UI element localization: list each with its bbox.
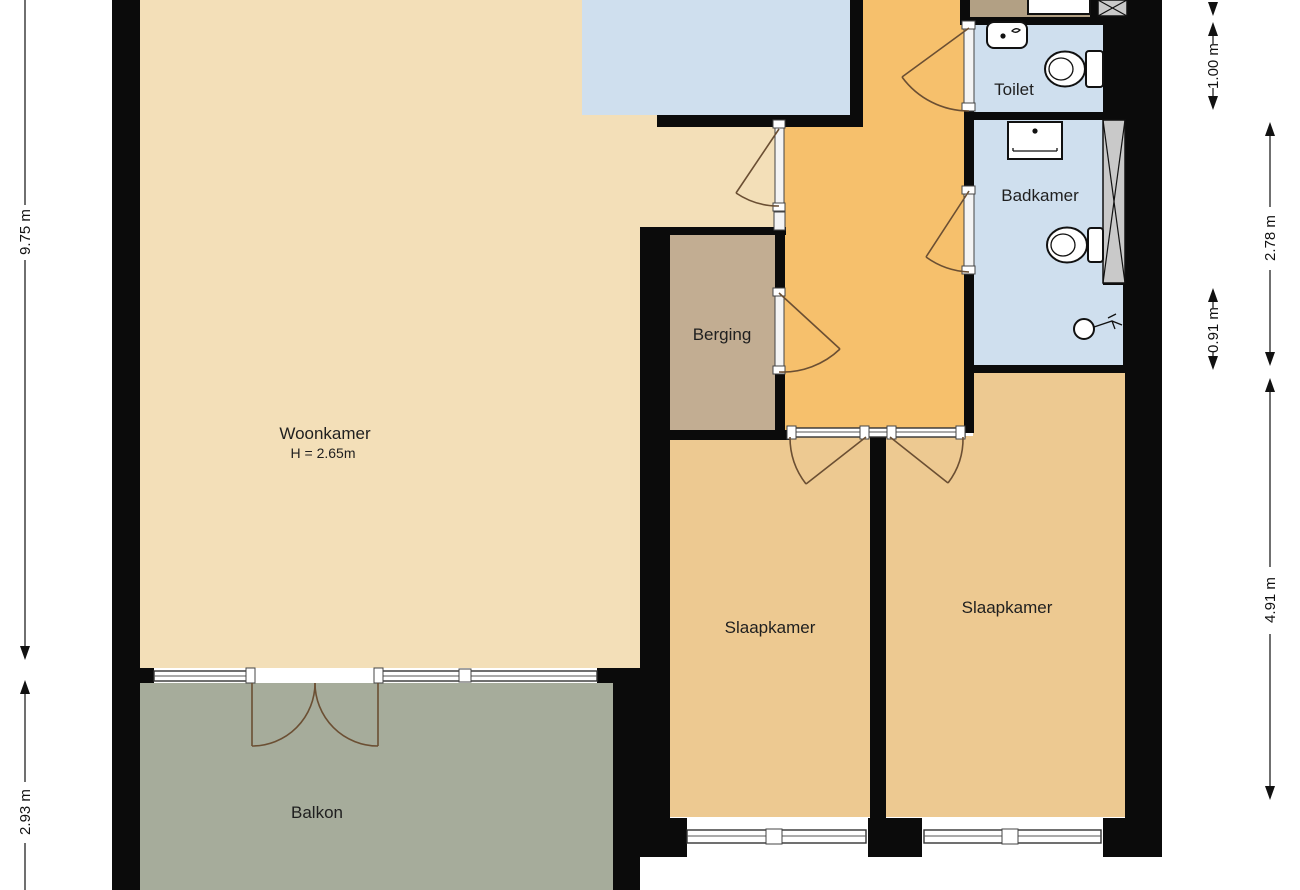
label-badkamer: Badkamer [1001, 186, 1079, 205]
wall-woonkamer-south-left [140, 668, 154, 683]
dimension-right-badkamer: 2.78 m [1262, 122, 1279, 366]
toilet-icon-badkamer [1047, 228, 1103, 263]
label-woonkamer-height: H = 2.65m [291, 445, 356, 461]
wall-berging-hall-b [775, 371, 785, 440]
wall-berging-hall-a [775, 227, 785, 291]
door-jamb [962, 103, 975, 111]
dimension-right-badkamer-low: 0.91 m [1205, 288, 1222, 370]
label-slaapkamer-right: Slaapkamer [962, 598, 1053, 617]
door-jamb [860, 426, 869, 439]
sink-icon-badkamer [1008, 122, 1062, 159]
room-hall [783, 127, 964, 433]
dimension-left-balcony: 2.93 m [17, 680, 34, 890]
arrow-down-icon [1208, 96, 1218, 110]
dimension-right-toilet: 1.00 m [1205, 22, 1222, 110]
dimension-label: 2.78 m [1262, 215, 1279, 261]
dimension-label: 2.93 m [17, 789, 34, 835]
door-toilet-band [964, 27, 974, 105]
arrow-up-icon [1265, 378, 1275, 392]
door-jamb [246, 668, 255, 683]
arrow-up-icon [20, 680, 30, 694]
arrow-up-icon [1265, 122, 1275, 136]
wall-kitchen-right [850, 0, 863, 127]
wall-exterior-right-mid [1123, 285, 1162, 373]
arrow-down-icon [1265, 786, 1275, 800]
dimension-label: 1.00 m [1205, 43, 1222, 89]
arrow-down-icon [1208, 2, 1218, 16]
label-balkon: Balkon [291, 803, 343, 822]
window-mullion [766, 829, 782, 844]
wall-berging-bottom [640, 430, 790, 440]
wall-woonkamer-berging [640, 227, 670, 857]
wall-annex-left [960, 0, 970, 17]
wall-badkamer-bottom [964, 365, 1123, 373]
arrow-down-icon [1265, 352, 1275, 366]
room-slaapkamer-right-upper [973, 373, 1125, 440]
door-berging-band [775, 294, 784, 368]
wall-bedroom-divider [870, 428, 886, 818]
door-jamb [374, 668, 383, 683]
door-woonkamer-band [775, 123, 784, 207]
door-jamb [962, 266, 975, 274]
wall-toilet-top [960, 17, 1107, 25]
wall-balkon-right [613, 668, 640, 890]
window-mullion [459, 669, 471, 682]
wall-berging-top [640, 227, 786, 235]
wall-exterior-right-bottom [1125, 373, 1162, 835]
door-jamb [887, 426, 896, 439]
label-berging: Berging [693, 325, 752, 344]
window-mullion [1002, 829, 1018, 844]
label-toilet: Toilet [994, 80, 1034, 99]
door-badkamer-band [964, 192, 974, 268]
door-side-panel [774, 212, 785, 230]
room-balkon [140, 683, 613, 890]
door-jamb [773, 203, 785, 211]
arrow-down-icon [1208, 356, 1218, 370]
door-jamb [773, 120, 785, 128]
floor-plan-canvas: 9.75 m 2.93 m 1.00 m 0.91 m [0, 0, 1300, 890]
wall-toilet-badkamer [964, 112, 1107, 120]
arrow-up-icon [1208, 22, 1218, 36]
room-slaapkamer-right [886, 436, 1125, 817]
kitchen-counter-icon [1028, 0, 1090, 14]
wall-exterior-left [112, 0, 140, 890]
room-woonkamer [140, 0, 640, 668]
floor-plan: 9.75 m 2.93 m 1.00 m 0.91 m [0, 0, 1300, 890]
door-jamb [773, 288, 785, 296]
wall-pier-bottom-left [640, 818, 687, 857]
dimension-label: 4.91 m [1262, 577, 1279, 623]
dimension-left-total: 9.75 m [17, 0, 34, 660]
wall-pier-bottom-right [1103, 818, 1162, 857]
wall-kitchen-bottom [657, 115, 853, 127]
door-jamb [787, 426, 796, 439]
arrow-up-icon [1208, 288, 1218, 302]
room-kitchen-area [582, 0, 850, 115]
wall-hall-right-c [964, 272, 974, 433]
dimension-label: 0.91 m [1205, 307, 1222, 353]
wall-pier-bottom-center [868, 818, 922, 857]
label-slaapkamer-left: Slaapkamer [725, 618, 816, 637]
sink-icon-toilet [987, 22, 1027, 48]
toilet-icon-toilet-room [1045, 51, 1103, 87]
dimension-right-bedroom: 4.91 m [1262, 378, 1279, 800]
label-woonkamer: Woonkamer [279, 424, 371, 443]
dimension-label: 9.75 m [17, 209, 34, 255]
arrow-down-icon [20, 646, 30, 660]
